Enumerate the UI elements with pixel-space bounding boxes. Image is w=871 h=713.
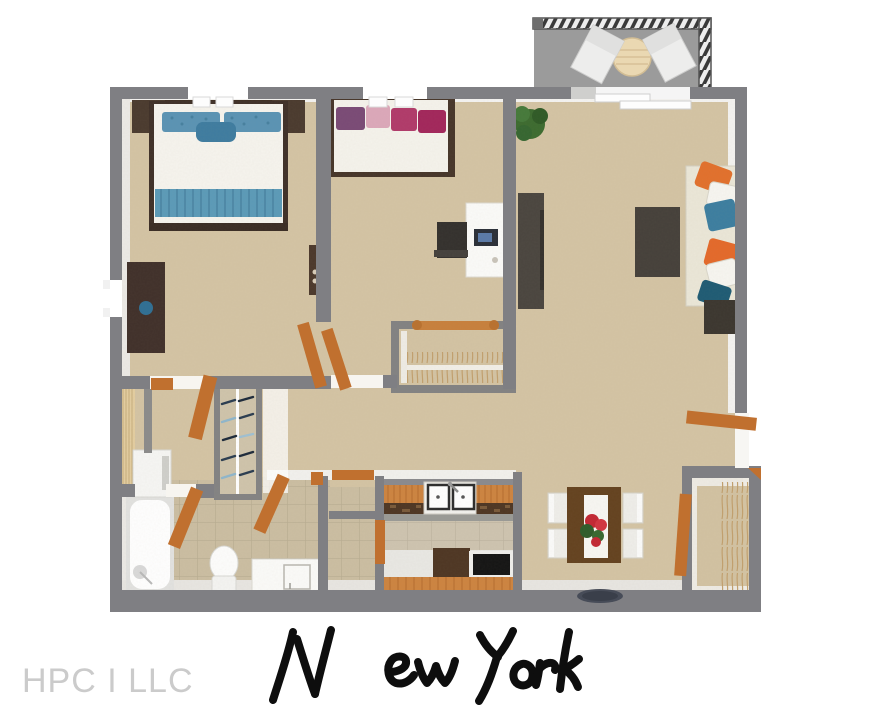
svg-text:HPC I LLC: HPC I LLC bbox=[22, 662, 194, 700]
